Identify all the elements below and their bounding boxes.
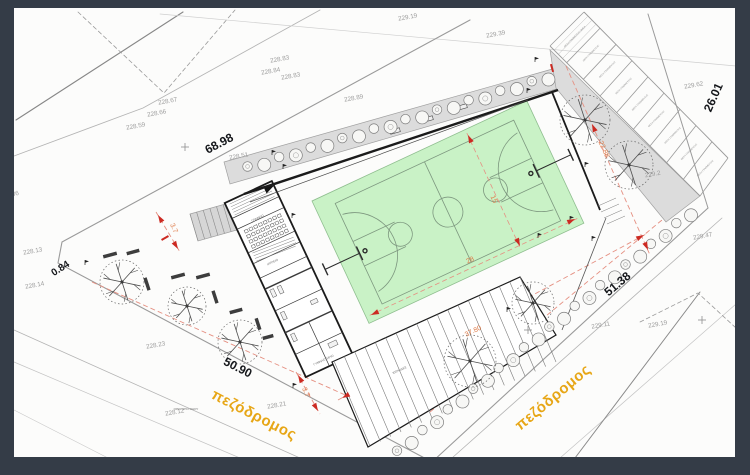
tree-trunk bbox=[238, 340, 241, 343]
shrub bbox=[392, 446, 402, 456]
shrub bbox=[464, 95, 474, 105]
tree-trunk bbox=[468, 359, 471, 362]
tree-trunk bbox=[627, 163, 630, 166]
shrub bbox=[384, 120, 397, 133]
shrub bbox=[352, 130, 365, 143]
shrub bbox=[447, 101, 460, 114]
shrub bbox=[289, 149, 302, 162]
shrub bbox=[243, 162, 253, 172]
shrub bbox=[306, 143, 316, 153]
shrub bbox=[479, 92, 492, 105]
shrub bbox=[634, 250, 647, 263]
shrub bbox=[519, 342, 529, 352]
tree-trunk bbox=[531, 301, 534, 304]
shrub bbox=[468, 384, 478, 394]
shrub bbox=[258, 158, 271, 171]
shrub bbox=[432, 105, 442, 115]
shrub bbox=[405, 436, 418, 449]
shrub bbox=[542, 73, 555, 86]
shrub bbox=[532, 333, 545, 346]
shrub bbox=[545, 322, 555, 332]
shrub bbox=[495, 86, 505, 96]
shrub bbox=[621, 260, 631, 270]
shrub bbox=[337, 133, 347, 143]
shrub bbox=[558, 312, 571, 325]
shrub bbox=[418, 425, 428, 435]
shrub bbox=[401, 114, 411, 124]
shrub bbox=[274, 152, 284, 162]
site-plan-drawing: ΘΕΣΗ ΣΤΑΘΜΕΥΣΗΣ ΑΜΕΑΘΕΣΗ ΣΤΑΘΜΕΥΣΗΣΘΕΣΗ … bbox=[0, 0, 750, 475]
shrub bbox=[507, 354, 520, 367]
shrub bbox=[570, 301, 580, 311]
shrub bbox=[659, 229, 672, 242]
shrub bbox=[685, 209, 698, 222]
shrub bbox=[481, 374, 494, 387]
shrub bbox=[527, 76, 537, 86]
site-plan-canvas: ΘΕΣΗ ΣΤΑΘΜΕΥΣΗΣ ΑΜΕΑΘΕΣΗ ΣΤΑΘΜΕΥΣΗΣΘΕΣΗ … bbox=[0, 0, 750, 475]
shrub bbox=[431, 416, 444, 429]
shrub bbox=[583, 292, 596, 305]
shrub bbox=[456, 395, 469, 408]
shrub bbox=[671, 218, 681, 228]
tree-trunk bbox=[120, 280, 123, 283]
shrub bbox=[510, 83, 523, 96]
shrub bbox=[443, 405, 453, 415]
tree-trunk bbox=[583, 118, 586, 121]
shrub bbox=[321, 139, 334, 152]
room-label: ΟΡΙΟ ΑΠΟ ΟΔΟΥ bbox=[174, 407, 199, 411]
shrub bbox=[494, 363, 504, 373]
shrub bbox=[369, 124, 379, 134]
shrub bbox=[416, 111, 429, 124]
tree-trunk bbox=[185, 304, 188, 307]
